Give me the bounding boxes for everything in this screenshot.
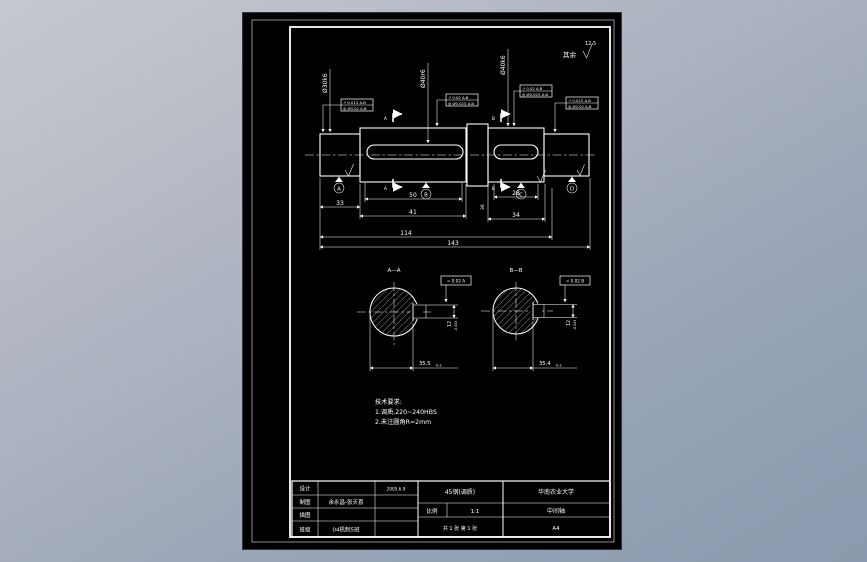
- datum-4-letter: D: [570, 186, 574, 192]
- roughness-value: 12.5: [585, 41, 596, 47]
- cut-label-b-top: B: [492, 116, 495, 122]
- shaft-drawing: 其余 12.5: [243, 13, 621, 549]
- dim-114: 114: [400, 230, 412, 237]
- dim-143: 143: [447, 240, 459, 247]
- section-view-b: B—B 12 -0.043 = 0.02 B: [481, 268, 590, 371]
- dim-41: 41: [409, 209, 417, 216]
- material-value: 45钢(调质): [445, 488, 475, 496]
- section-view-a: A—A 12 -0.043 = 0.02 A: [357, 268, 471, 371]
- fcf-2-row1: ↗ 0.02 A-B: [448, 95, 469, 100]
- cut-label-b-bottom: B: [492, 186, 495, 192]
- datum-2-letter: B: [424, 192, 428, 198]
- keyway-slot-2: [494, 145, 538, 159]
- surface-roughness-icons: [345, 164, 585, 182]
- diameter-dimensions: Ø30k6 Ø40r6 Ø40k6: [322, 49, 508, 143]
- datum-symbols: A B C D: [334, 176, 577, 199]
- section-a-depth-tol: -0.2: [435, 364, 442, 368]
- desktop-background: 其余 12.5: [0, 0, 867, 562]
- section-a-fcf: = 0.02 A: [447, 279, 465, 284]
- section-b-depth-tol: -0.2: [555, 364, 562, 368]
- class-value: 04机制5班: [333, 526, 360, 534]
- title-block: 设计 制图 描图 班级 余永昌-张天喜 04机制5班 2005.6.9 45钢(…: [292, 481, 610, 537]
- dim-50: 50: [409, 192, 417, 199]
- scale-value: 1:1: [471, 509, 480, 515]
- section-a-label: A—A: [387, 268, 400, 274]
- datum-1-letter: A: [337, 186, 341, 192]
- fcf-4-row2: ◎ Ø0.02 A-B: [568, 104, 592, 109]
- date-value: 2005.6.9: [387, 487, 406, 492]
- fcf-3-row1: ↗ 0.02 A-B: [522, 86, 543, 91]
- paper-size: A4: [552, 526, 560, 532]
- section-b-keyway-mask: [531, 304, 541, 319]
- row-design-label: 设计: [299, 485, 311, 493]
- section-a-width-tol: -0.043: [454, 321, 458, 331]
- university-name: 华南农业大学: [538, 488, 574, 496]
- cut-label-a-bottom: A: [384, 186, 388, 192]
- sheet-info: 共 1 张 第 1 张: [443, 525, 477, 532]
- fcf-2-row2: ◎ Ø0.025 A-B: [448, 101, 474, 106]
- corner-roughness-note: 其余 12.5: [563, 41, 596, 59]
- fcf-1: ↗ 0.015 A-B ◎ Ø0.02 A-B: [323, 99, 373, 132]
- section-a-depth: 35.5: [419, 361, 431, 367]
- fcf-3: ↗ 0.02 A-B ◎ Ø0.025 A-B: [514, 85, 552, 126]
- dia-label-2: Ø40r6: [420, 69, 427, 88]
- fcf-4: ↗ 0.015 A-B ◎ Ø0.02 A-B: [555, 97, 598, 132]
- scale-label: 比例: [426, 507, 438, 515]
- section-a-keyway-mask: [411, 304, 421, 319]
- fcf-1-row2: ◎ Ø0.02 A-B: [343, 106, 367, 111]
- section-b-fcf: = 0.02 B: [566, 279, 584, 284]
- section-b-width-tol: -0.043: [573, 320, 577, 330]
- drafter-names: 余永昌-张天喜: [329, 498, 364, 506]
- row-trace-label: 描图: [299, 511, 311, 519]
- main-view: Ø30k6 Ø40r6 Ø40k6 ↗ 0.015 A-B ◎ Ø0.02 A-…: [305, 49, 598, 250]
- row-class-label: 班级: [299, 526, 311, 534]
- cut-label-a-top: A: [384, 116, 388, 122]
- datum-4: D: [567, 176, 577, 193]
- fcf-3-row2: ◎ Ø0.025 A-B: [522, 92, 548, 97]
- dia-label-1: Ø30k6: [322, 73, 329, 93]
- section-b-label: B—B: [509, 268, 522, 274]
- section-b-width: 12: [566, 320, 572, 326]
- technical-requirements: 技术要求: 1.调质,220~240HBS 2.未注圆角R=2mm: [375, 398, 437, 426]
- dim-36: 36: [480, 204, 486, 210]
- cad-viewport: 其余 12.5: [243, 13, 621, 549]
- part-name: 中间轴: [547, 507, 565, 515]
- fcf-2: ↗ 0.02 A-B ◎ Ø0.025 A-B: [437, 94, 478, 126]
- datum-2: B: [421, 182, 431, 199]
- section-cut-marks: A A B B: [384, 114, 510, 192]
- keyway-slot-1: [367, 145, 463, 159]
- tech-line-2: 2.未注圆角R=2mm: [375, 418, 431, 426]
- linear-dimensions: 33 50 41 28 34 36 114 143: [320, 178, 590, 250]
- section-a-width: 12: [447, 321, 453, 327]
- tech-title: 技术要求:: [375, 398, 402, 406]
- datum-1: A: [334, 176, 344, 193]
- row-draft-label: 制图: [299, 498, 311, 506]
- fcf-4-row1: ↗ 0.015 A-B: [568, 98, 591, 103]
- dim-33: 33: [336, 200, 344, 207]
- dim-34: 34: [512, 212, 520, 219]
- other-surfaces-label: 其余: [563, 50, 577, 59]
- section-b-depth: 35.4: [539, 361, 551, 367]
- tech-line-1: 1.调质,220~240HBS: [375, 408, 437, 416]
- feature-control-frames: ↗ 0.015 A-B ◎ Ø0.02 A-B ↗ 0.02 A-B ◎ Ø0.…: [323, 85, 598, 132]
- dia-label-3: Ø40k6: [500, 55, 507, 75]
- dim-28: 28: [512, 190, 520, 197]
- fcf-1-row1: ↗ 0.015 A-B: [343, 100, 366, 105]
